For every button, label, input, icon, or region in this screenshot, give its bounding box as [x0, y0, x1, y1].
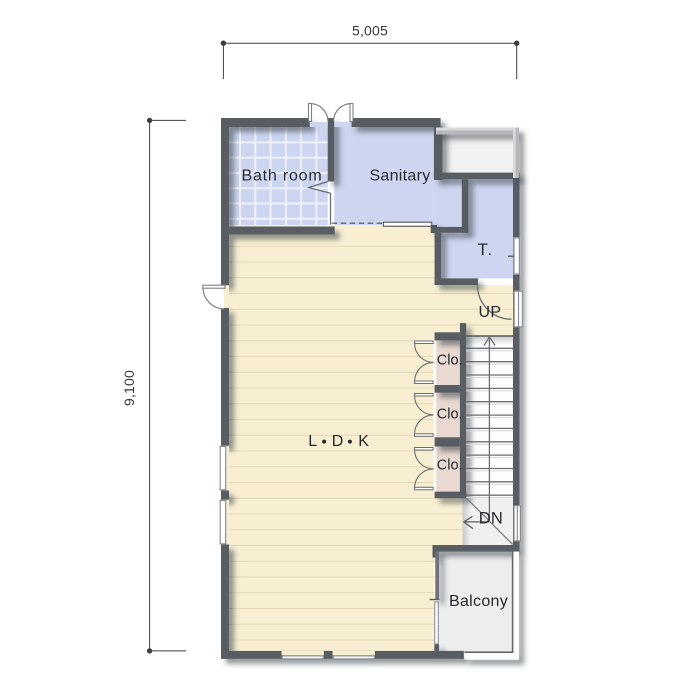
svg-text:Sanitary: Sanitary: [369, 167, 430, 184]
svg-text:Balcony: Balcony: [449, 593, 508, 610]
svg-text:Bath room: Bath room: [242, 167, 323, 184]
svg-text:L: L: [308, 433, 317, 450]
svg-text:UP: UP: [479, 304, 502, 321]
svg-text:D: D: [332, 433, 344, 450]
svg-text:Clo.: Clo.: [437, 458, 463, 474]
svg-text:5,005: 5,005: [352, 23, 388, 39]
svg-text:Clo.: Clo.: [437, 407, 463, 423]
svg-text:K: K: [358, 433, 369, 450]
svg-text:Clo.: Clo.: [437, 353, 463, 369]
svg-text:9,100: 9,100: [121, 370, 137, 406]
svg-text:DN: DN: [479, 510, 503, 528]
svg-text:T.: T.: [478, 240, 494, 259]
